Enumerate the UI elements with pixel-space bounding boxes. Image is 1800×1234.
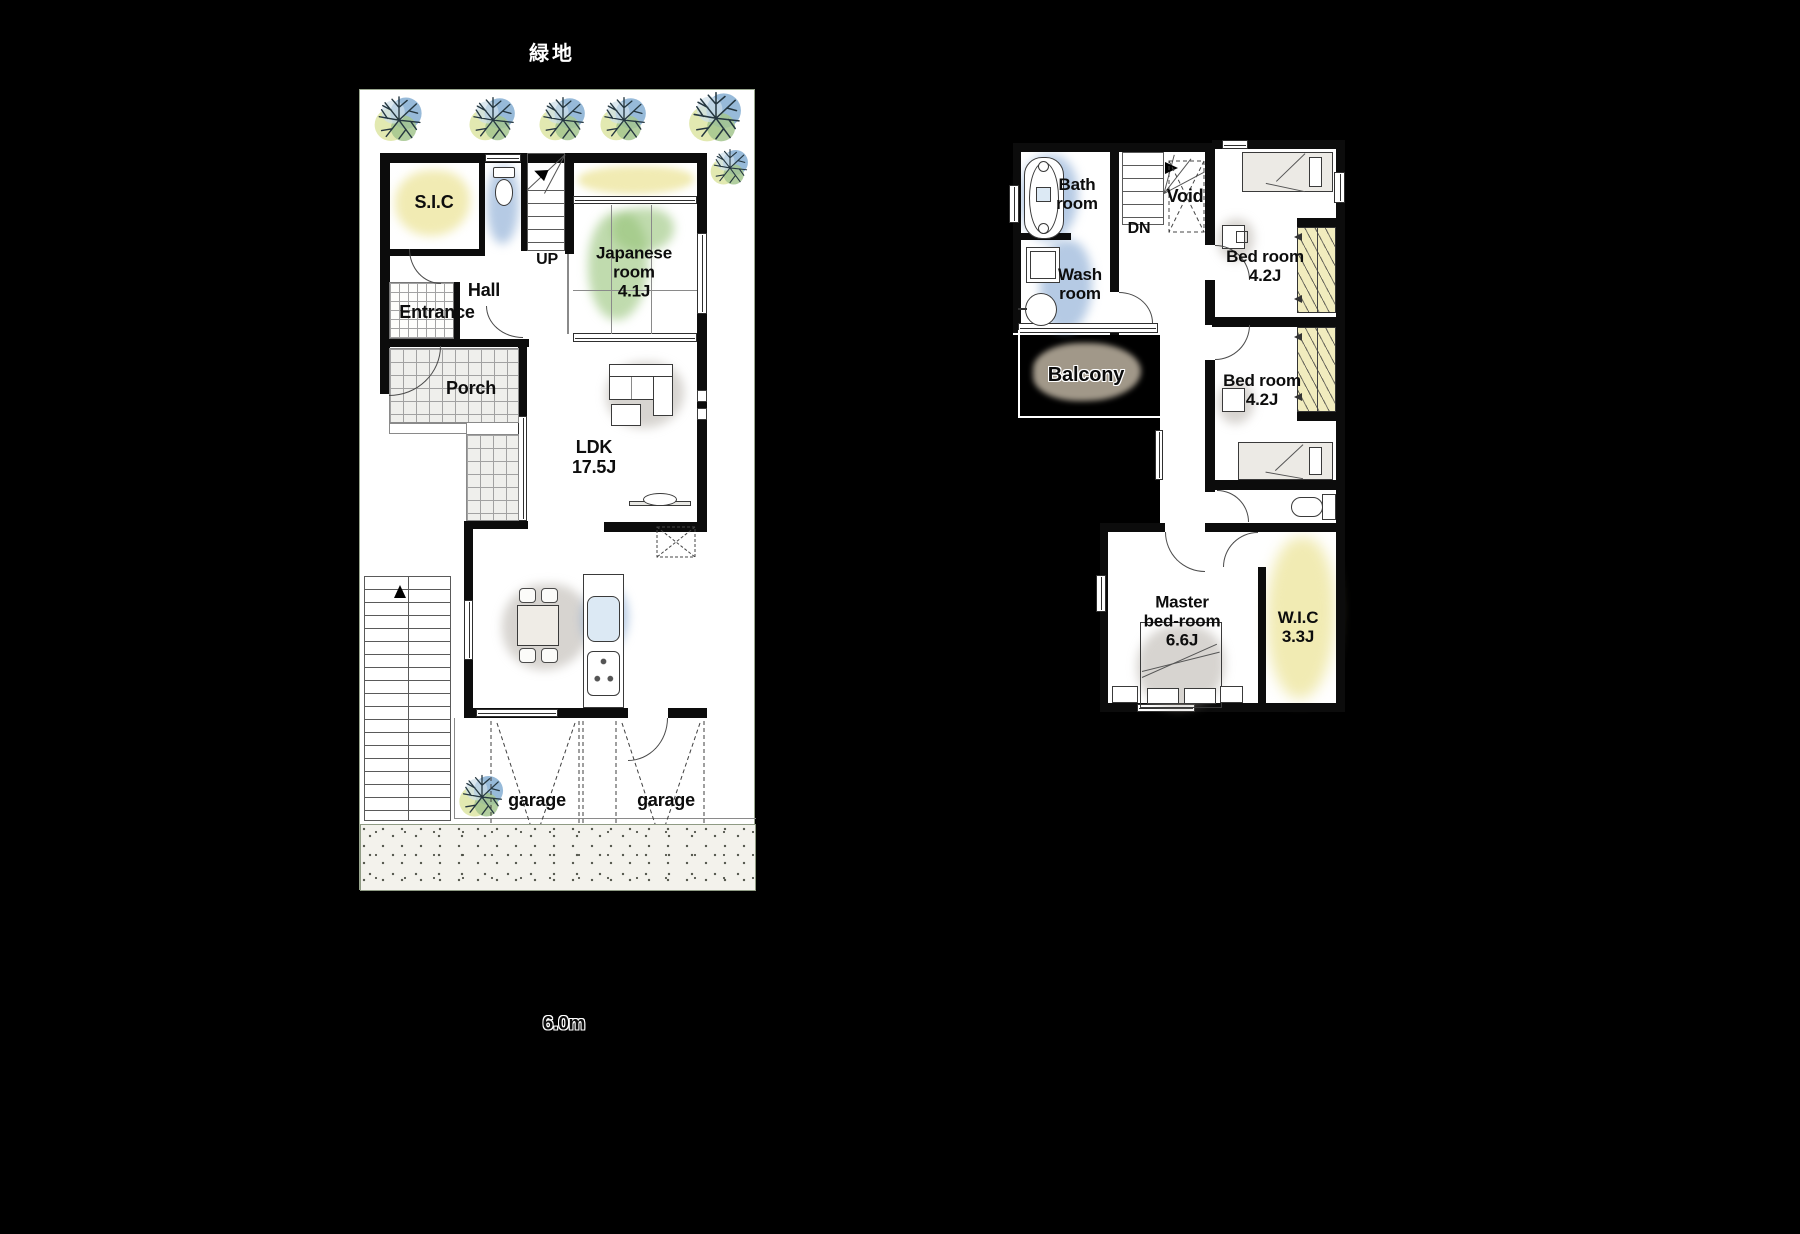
wall xyxy=(1110,143,1119,292)
balcony-edge xyxy=(1162,330,1164,418)
pillow xyxy=(1147,688,1179,704)
room-label-sic: S.I.C xyxy=(414,192,453,212)
door-arc xyxy=(486,306,523,338)
wall xyxy=(479,153,485,250)
pillow xyxy=(1184,688,1216,704)
room-label-balcony: Balcony xyxy=(1048,364,1124,386)
garage-pillar-dashed-box xyxy=(656,526,696,558)
balcony-edge xyxy=(1018,330,1020,418)
window xyxy=(518,416,527,521)
kitchen-sink xyxy=(587,596,620,642)
floorplan-page: 緑地 6.0m xyxy=(0,0,1800,1234)
hanger-icon xyxy=(1290,333,1302,341)
wall xyxy=(1258,703,1345,712)
window xyxy=(697,233,707,314)
wall xyxy=(464,521,528,529)
room-label-bath: Bath room xyxy=(1051,175,1103,213)
wall-vent xyxy=(697,408,707,420)
chair xyxy=(519,588,536,603)
pillow xyxy=(1309,157,1322,187)
toilet-tank xyxy=(1322,494,1336,520)
room-label-bedroom-upper: Bed room 4.2J xyxy=(1219,247,1311,285)
dining-table xyxy=(517,605,559,646)
balcony-edge xyxy=(1018,416,1164,418)
green-area-label: 緑地 xyxy=(529,43,575,65)
wall xyxy=(697,153,707,531)
porch-tiles xyxy=(466,434,519,521)
toilet-tank xyxy=(493,167,515,178)
window xyxy=(1222,140,1248,149)
room-label-japanese: Japanese room 4.1J xyxy=(587,243,681,300)
stair-label-dn: DN xyxy=(1128,220,1151,238)
floor1-plan: S.I.C Hall Entrance Porch UP Japanese ro… xyxy=(359,89,755,890)
wall xyxy=(518,346,527,416)
nightstand xyxy=(1112,686,1138,703)
wall xyxy=(1336,523,1345,712)
wall xyxy=(1205,360,1215,492)
staircase-up xyxy=(527,190,565,251)
sink-tap xyxy=(1018,308,1027,310)
ottoman xyxy=(611,404,641,426)
room-label-entrance: Entrance xyxy=(399,302,474,322)
window xyxy=(1334,172,1345,203)
room-label-porch: Porch xyxy=(446,378,496,398)
pillow xyxy=(1309,447,1322,475)
toilet-bowl xyxy=(495,179,513,206)
tree-icon xyxy=(684,85,748,149)
wall xyxy=(1100,523,1165,532)
window xyxy=(1009,185,1019,223)
exterior-staircase xyxy=(364,576,451,821)
room-label-hall: Hall xyxy=(468,280,500,300)
desk-chair xyxy=(1236,231,1248,243)
room-label-wash: Wash room xyxy=(1052,265,1108,303)
window xyxy=(573,196,697,204)
sliding-door-line xyxy=(567,254,569,334)
tree-icon xyxy=(707,144,753,190)
wall xyxy=(1205,143,1215,245)
toilet-bowl xyxy=(1291,497,1323,517)
chair xyxy=(541,648,558,663)
room-label-bedroom-lower: Bed room 4.2J xyxy=(1216,371,1308,409)
window xyxy=(1096,575,1106,612)
road-width-label: 6.0m xyxy=(543,1013,586,1034)
window xyxy=(464,600,473,660)
tv xyxy=(643,493,677,506)
tree-icon xyxy=(465,91,521,147)
wall xyxy=(668,708,707,718)
window xyxy=(1155,430,1163,480)
window xyxy=(485,154,521,162)
door-arc xyxy=(409,249,441,284)
room-label-garage-right: garage xyxy=(637,790,695,810)
wall xyxy=(1212,480,1345,490)
chair xyxy=(541,588,558,603)
floor2-plan: Bath room Wash room DN Void Bed room 4.2… xyxy=(885,135,1350,715)
tub-faucet xyxy=(1038,161,1049,172)
sofa-line xyxy=(631,377,632,399)
room-label-wic: W.I.C 3.3J xyxy=(1263,608,1333,646)
wall-vent xyxy=(697,390,707,402)
tub-drain xyxy=(1038,223,1049,234)
staircase-down xyxy=(1122,152,1164,225)
room-label-garage-left: garage xyxy=(508,790,566,810)
window xyxy=(476,709,558,717)
window xyxy=(573,333,697,342)
porch-step xyxy=(389,423,467,434)
wall xyxy=(1100,523,1108,712)
driveway-stipple xyxy=(360,824,756,891)
room-label-master: Master bed-room 6.6J xyxy=(1137,592,1227,649)
wall xyxy=(1297,412,1345,421)
sofa-chaise xyxy=(653,376,673,416)
room-label-void: Void xyxy=(1167,186,1204,206)
chair xyxy=(519,648,536,663)
hanger-icon xyxy=(1290,295,1302,303)
wall xyxy=(1205,523,1345,532)
nightstand xyxy=(1220,686,1243,703)
hanger-icon xyxy=(1290,233,1302,241)
stair-label-up: UP xyxy=(536,251,558,269)
room-label-ldk: LDK 17.5J xyxy=(572,437,616,477)
tree-icon xyxy=(535,91,591,147)
tree-icon xyxy=(370,90,428,148)
japanese-yellow-wash xyxy=(578,166,694,194)
stair-up-arrow-icon xyxy=(394,579,406,598)
kitchen-stove xyxy=(587,651,620,696)
bath-drain-square xyxy=(1036,187,1051,202)
tree-icon xyxy=(596,91,652,147)
wall xyxy=(1297,218,1345,227)
